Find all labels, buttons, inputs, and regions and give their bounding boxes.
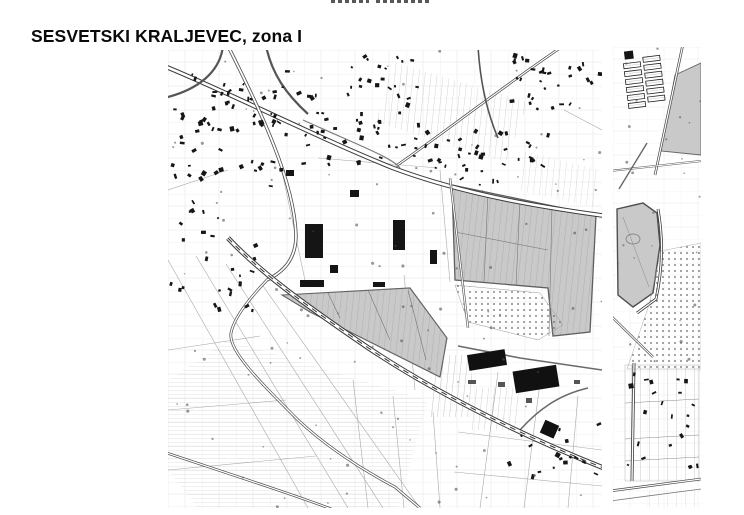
clipped-text-word-2 — [376, 0, 432, 3]
clipped-page-header-fragment — [331, 0, 432, 4]
east-map-strip-panel — [610, 47, 701, 508]
page-title: SESVETSKI KRALJEVEC, zona I — [31, 26, 302, 47]
strip-below-road-parcels — [643, 491, 699, 507]
map-figure — [168, 47, 701, 508]
strip-bottom-parcels — [625, 363, 699, 481]
clipped-text-word-1 — [331, 0, 369, 3]
main-map-panel — [168, 47, 614, 508]
